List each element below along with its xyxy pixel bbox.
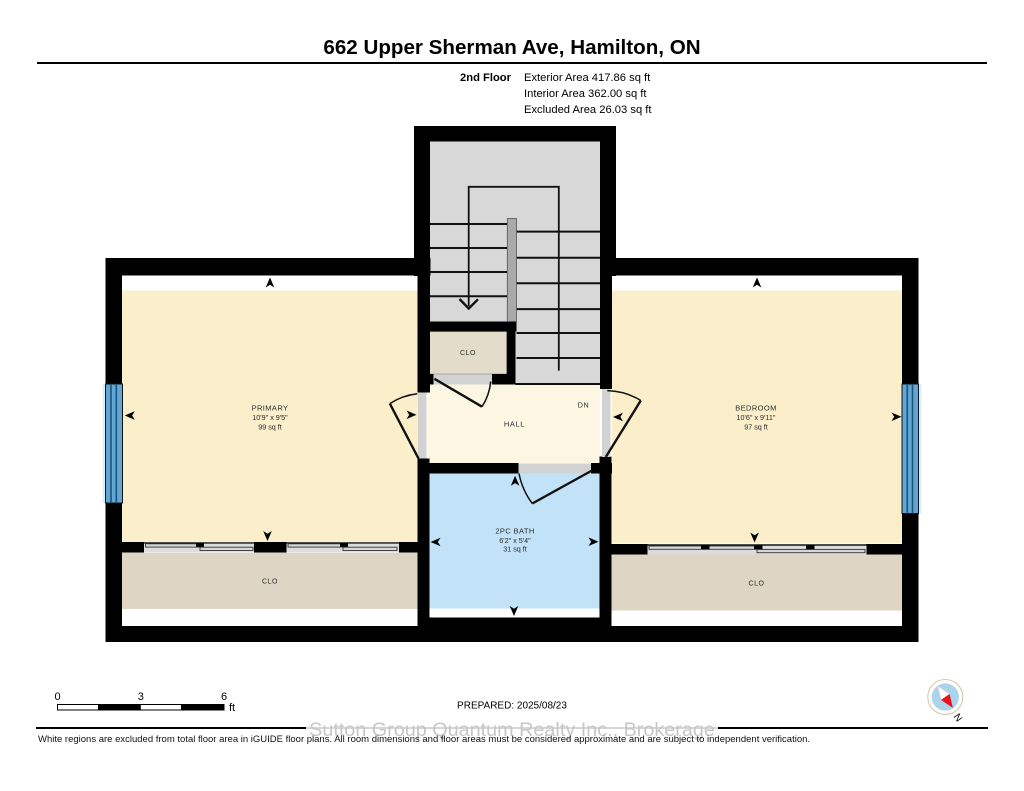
svg-text:ft: ft [229,702,235,714]
svg-text:0: 0 [54,691,60,703]
svg-text:2PC BATH: 2PC BATH [495,527,534,536]
svg-text:CLO: CLO [749,581,765,588]
svg-text:97 sq ft: 97 sq ft [744,422,768,431]
svg-text:DN: DN [578,401,589,410]
svg-text:HALL: HALL [504,420,525,429]
svg-text:PRIMARY: PRIMARY [252,404,289,413]
svg-text:6'2" x 5'4": 6'2" x 5'4" [499,536,531,545]
svg-text:CLO: CLO [460,350,476,357]
svg-text:6: 6 [221,691,227,703]
svg-text:CLO: CLO [262,579,278,586]
svg-text:10'9" x 9'5": 10'9" x 9'5" [252,413,288,422]
svg-text:10'6" x 9'11": 10'6" x 9'11" [737,413,776,422]
svg-text:BEDROOM: BEDROOM [735,404,777,413]
svg-text:3: 3 [138,691,144,703]
svg-text:PREPARED: 2025/08/23: PREPARED: 2025/08/23 [457,701,567,712]
svg-text:99 sq ft: 99 sq ft [258,422,282,431]
svg-text:31 sq ft: 31 sq ft [503,545,527,554]
